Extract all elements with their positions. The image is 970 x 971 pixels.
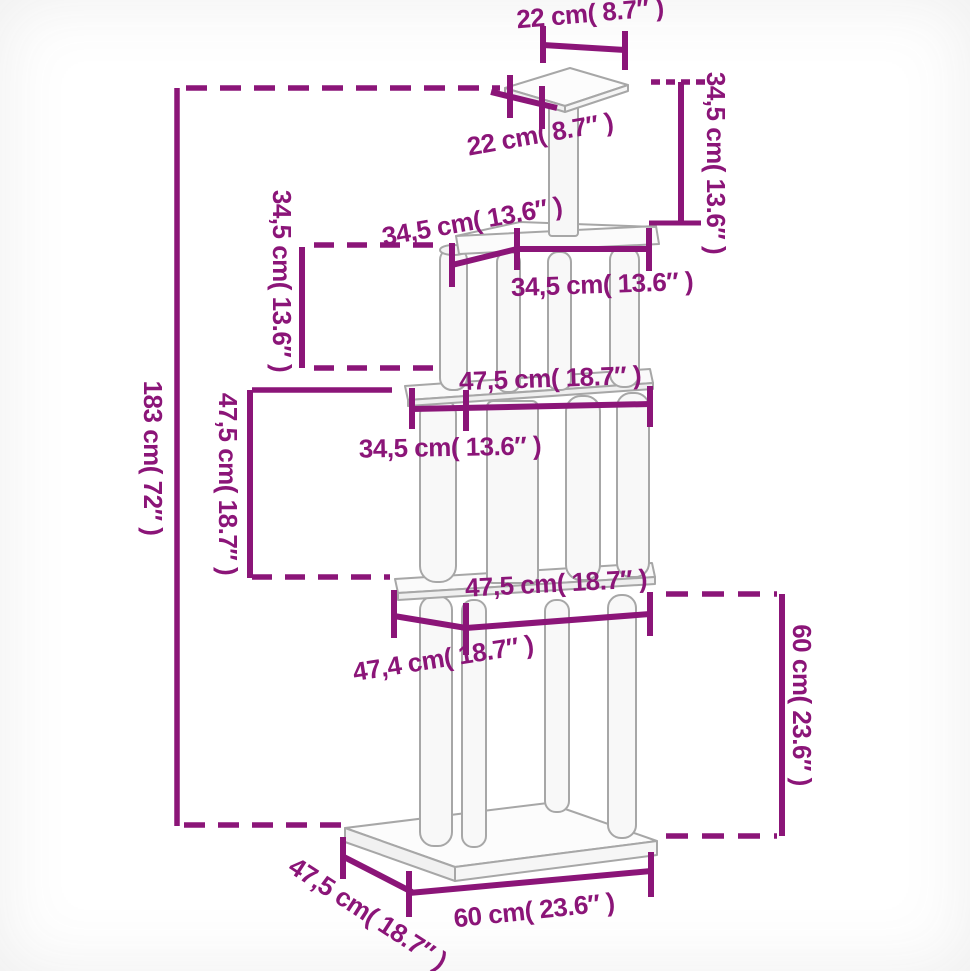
panel	[487, 401, 538, 583]
post	[545, 600, 569, 812]
post	[608, 595, 636, 838]
post	[420, 596, 452, 846]
dimension-diagram: 22 cm( 8.7″ ) 34,5 cm( 13.6″ ) 22 cm( 8.…	[0, 0, 970, 971]
post	[566, 396, 600, 580]
post	[420, 398, 456, 582]
dim-label-top-post-height: 34,5 cm( 13.6″ )	[703, 72, 729, 254]
dim-label-base-tier-height: 60 cm( 23.6″ )	[789, 624, 815, 786]
dim-line	[543, 45, 625, 50]
post	[617, 393, 649, 577]
dim-label-middle-platform-width: 47,5 cm( 18.7″ )	[458, 362, 641, 394]
dim-label-middle-tier-height: 47,5 cm( 18.7″ )	[215, 393, 241, 575]
dim-label-middle-platform-inner-width: 34,5 cm( 13.6″ )	[359, 432, 542, 461]
cat-tree-drawing	[345, 68, 659, 881]
dim-label-upper-tier-height: 34,5 cm( 13.6″ )	[269, 190, 295, 372]
dim-label-total-height: 183 cm( 72″ )	[140, 381, 166, 536]
dim-label-upper-platform-width: 34,5 cm( 13.6″ )	[510, 268, 693, 300]
